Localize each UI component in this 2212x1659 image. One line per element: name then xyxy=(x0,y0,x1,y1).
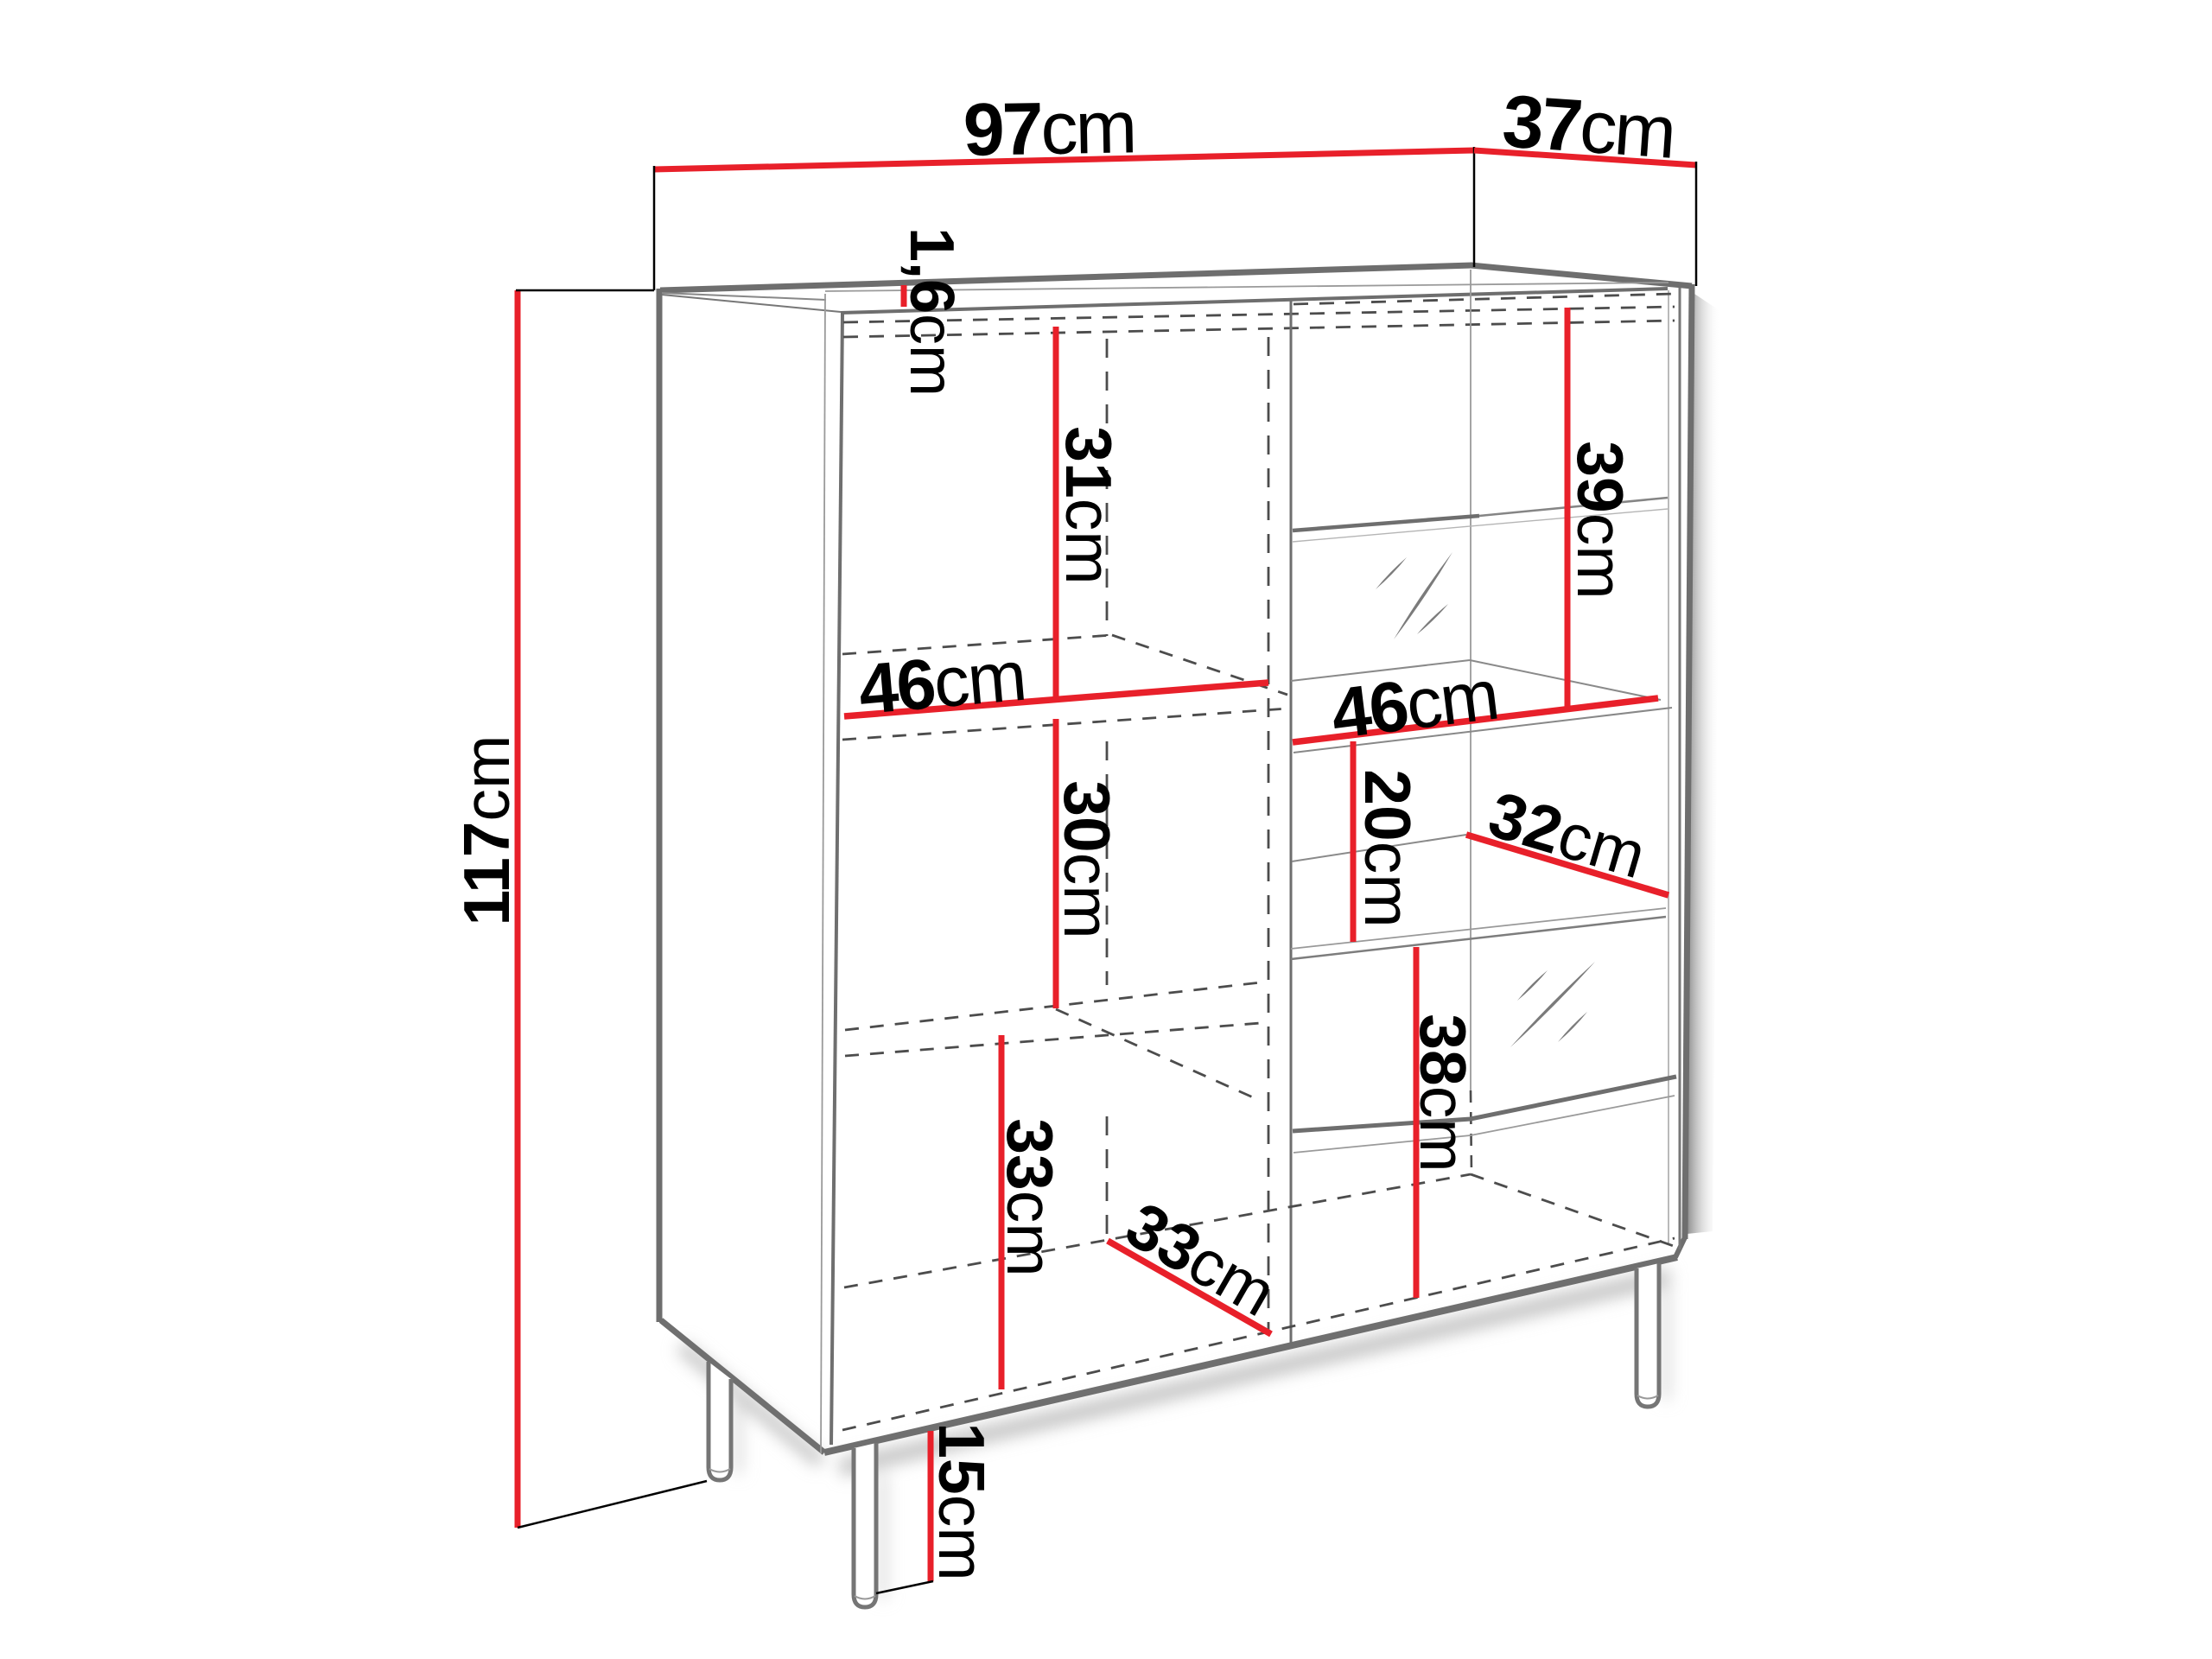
svg-text:38cm: 38cm xyxy=(1407,1014,1479,1172)
svg-text:33cm: 33cm xyxy=(994,1118,1066,1276)
svg-text:46cm: 46cm xyxy=(855,637,1028,729)
svg-text:37cm: 37cm xyxy=(1500,79,1677,175)
svg-text:30cm: 30cm xyxy=(1051,780,1123,938)
svg-text:1,6cm: 1,6cm xyxy=(897,227,966,397)
svg-text:117cm: 117cm xyxy=(450,735,523,926)
svg-text:97cm: 97cm xyxy=(963,86,1135,171)
svg-text:39cm: 39cm xyxy=(1564,441,1637,599)
svg-text:20cm: 20cm xyxy=(1351,769,1424,927)
svg-text:15cm: 15cm xyxy=(925,1422,998,1580)
svg-text:31cm: 31cm xyxy=(1052,426,1125,584)
